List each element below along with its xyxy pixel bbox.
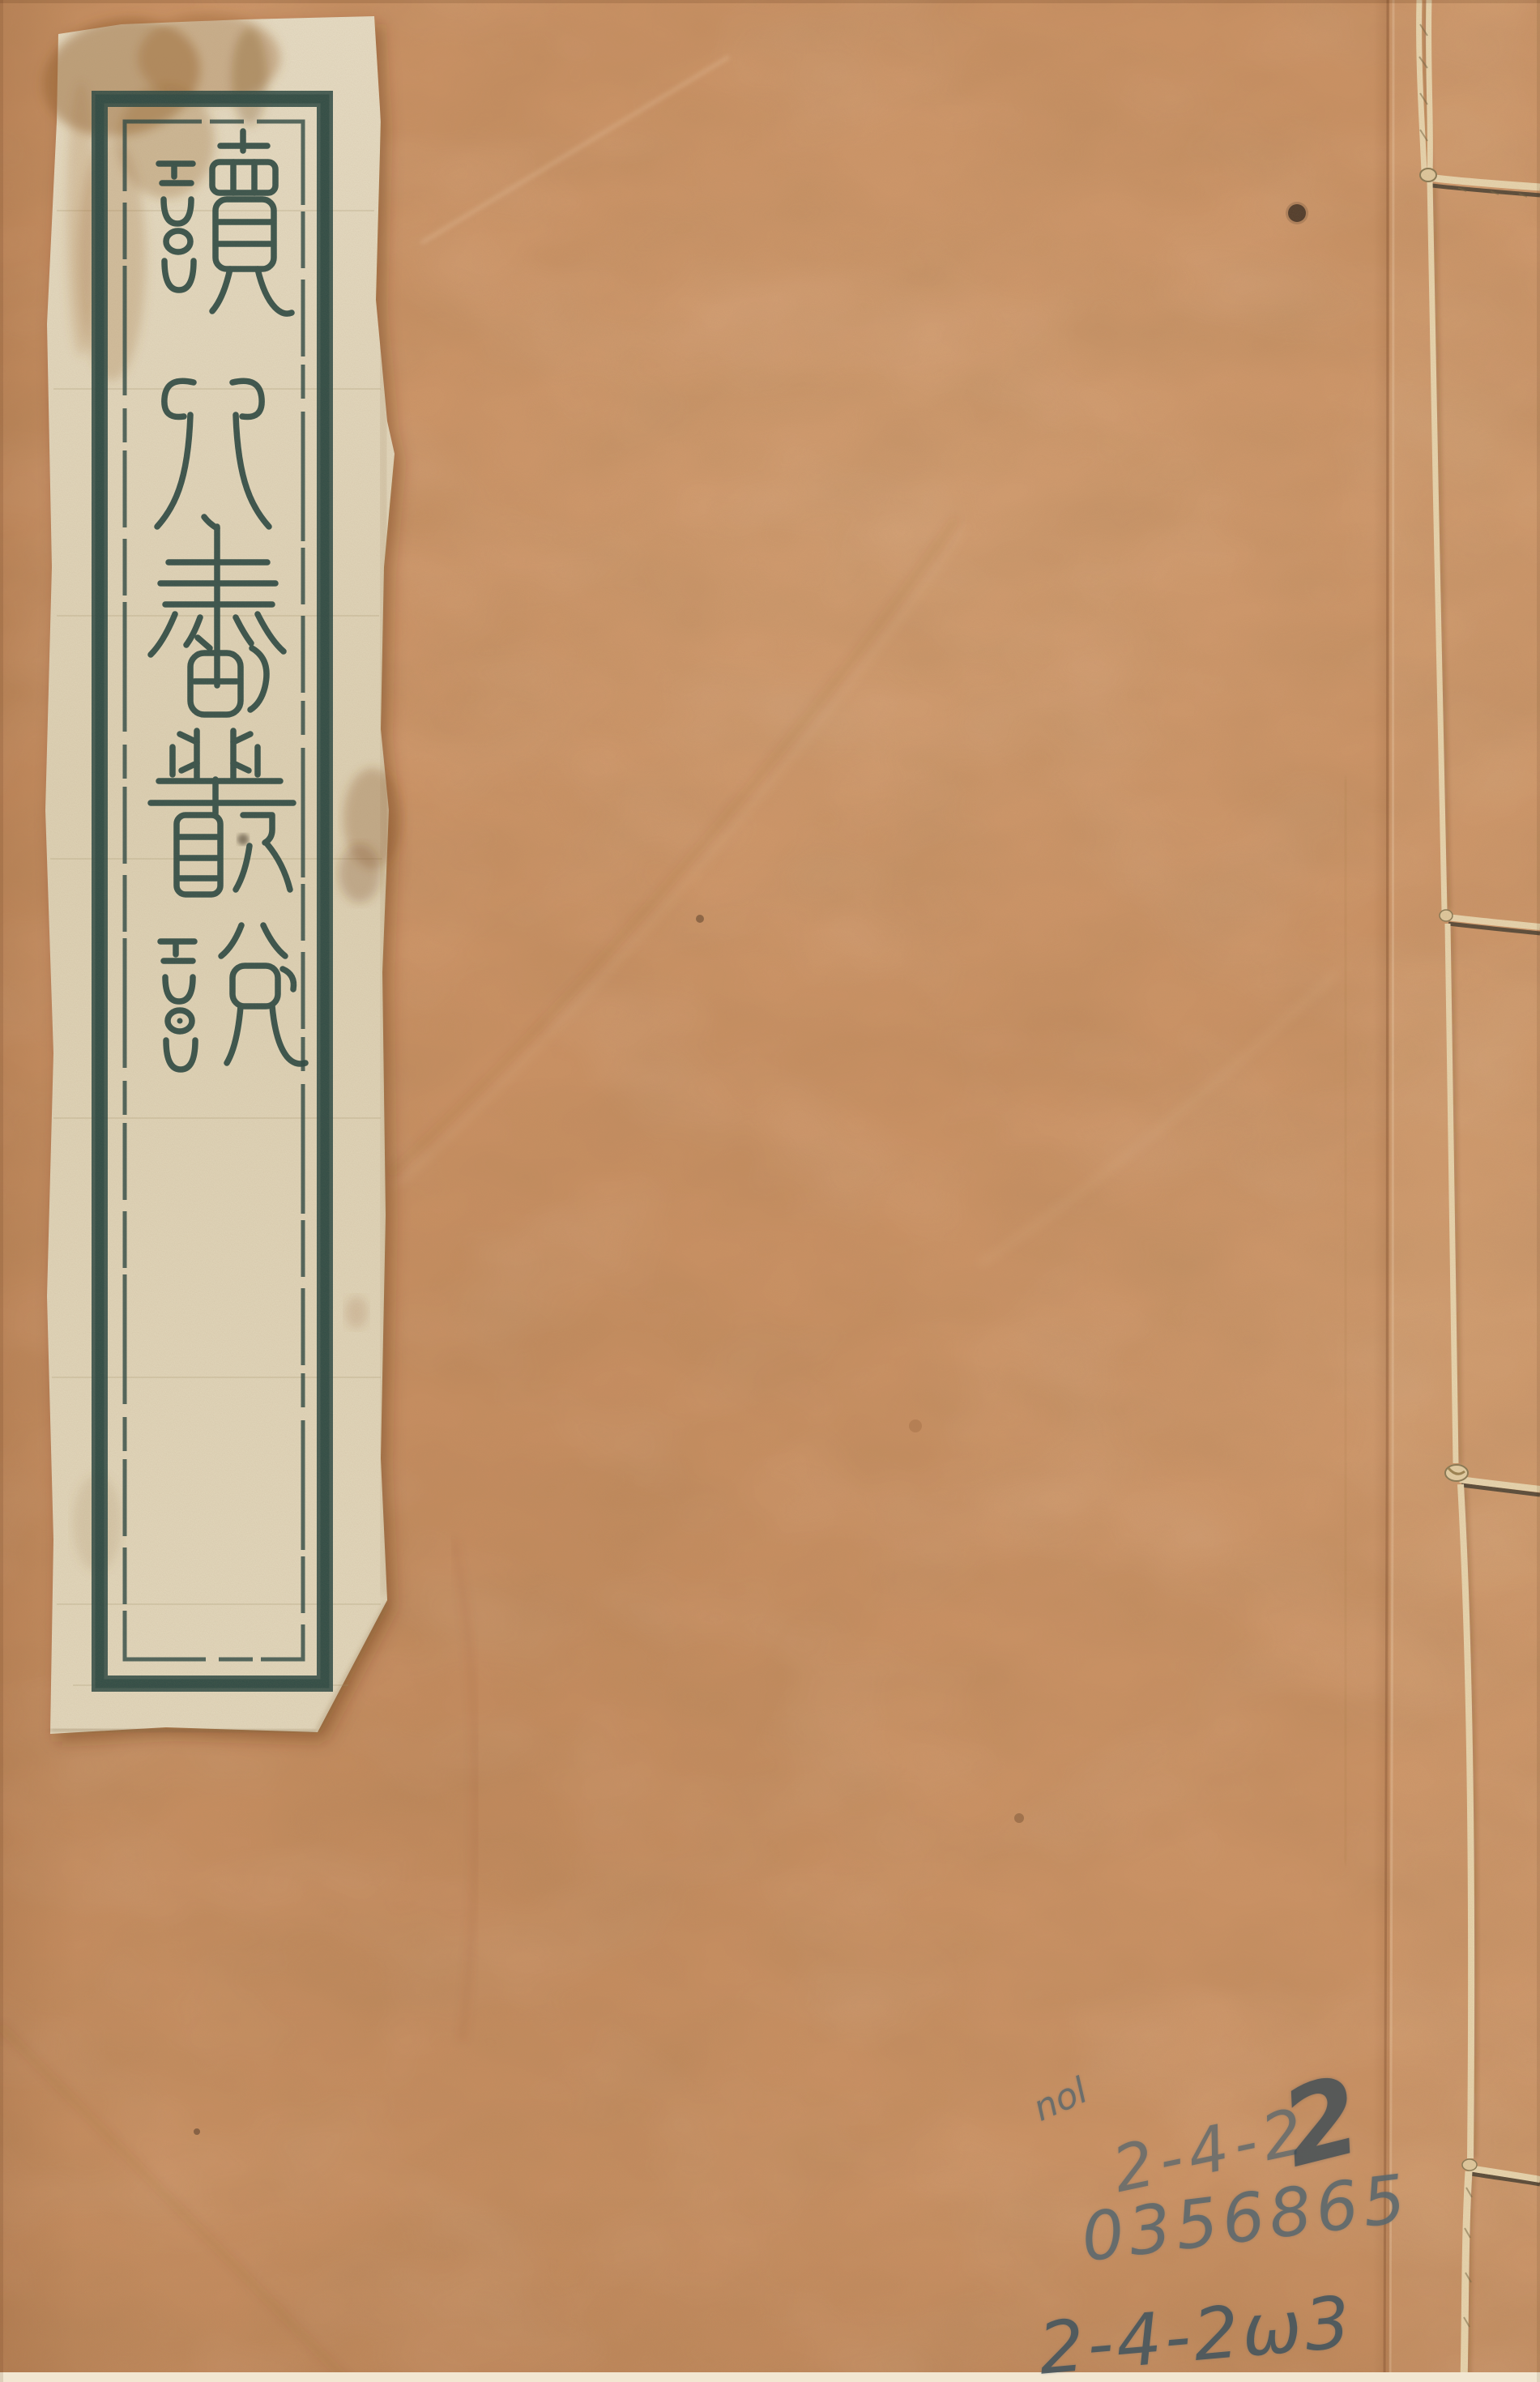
cover-graphics — [0, 0, 1540, 2382]
scan-grain — [0, 0, 1540, 2382]
book-cover-scan: nol 2-4-2 2 0356865 2-4-2ω3 讀北書叢說 — [0, 0, 1540, 2382]
